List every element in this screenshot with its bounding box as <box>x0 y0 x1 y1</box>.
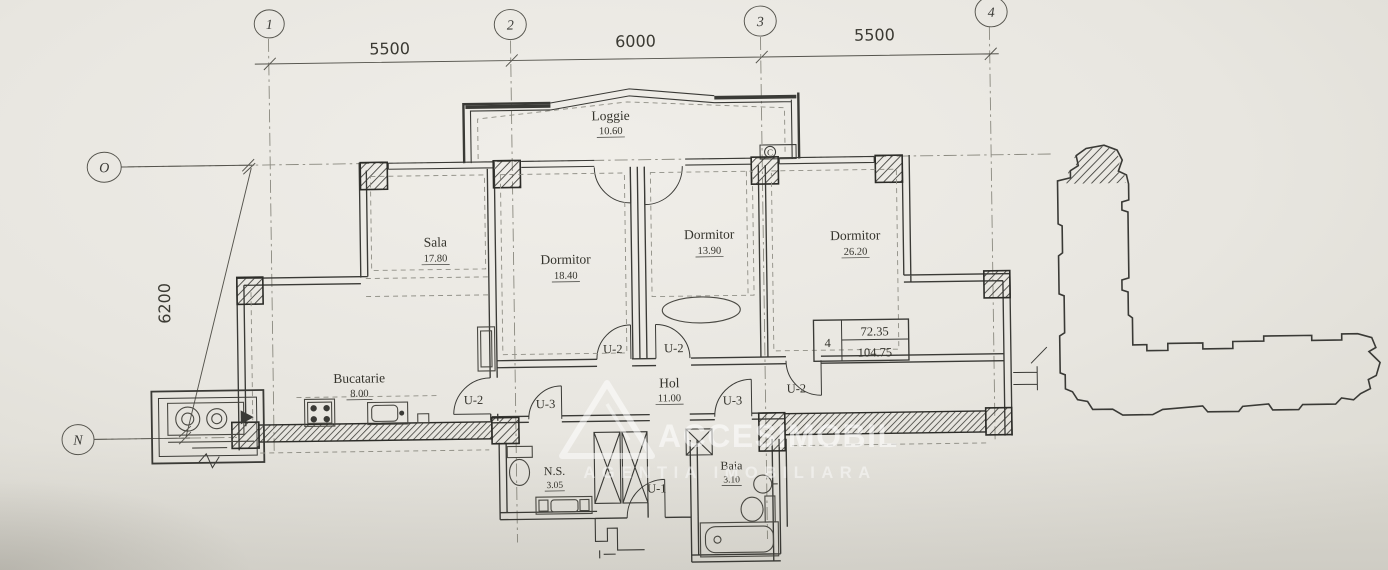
dim-left: 6200 <box>155 283 175 324</box>
room-area-bucatarie: 8.00 <box>350 389 369 400</box>
room-area-dormitor1: 18.40 <box>554 271 578 282</box>
dim-top-1: 5500 <box>369 39 410 59</box>
watermark-tagline-text: AGENTIA IMOBILIARA <box>583 464 876 482</box>
door-label-u3-ns: U-3 <box>536 397 556 411</box>
door-label-u2-bedroom2: U-2 <box>664 341 684 355</box>
room-area-dormitor3: 26.20 <box>844 247 868 258</box>
dim-top-3: 5500 <box>854 25 895 45</box>
axis-label-2: 2 <box>507 18 514 33</box>
door-label-u2-sala: U-2 <box>464 393 484 407</box>
door-label-u1-entrance: U-1 <box>647 481 667 495</box>
summary-apartment-number: 4 <box>825 336 832 350</box>
room-area-ns: 3.05 <box>546 481 563 491</box>
room-label-bucatarie: Bucatarie <box>333 370 385 386</box>
room-label-loggie: Loggie <box>591 108 629 124</box>
door-label-u2-bedroom3: U-2 <box>787 381 807 395</box>
room-label-dormitor1: Dormitor <box>540 251 591 267</box>
axis-label-o: O <box>99 161 109 176</box>
room-area-dormitor2: 13.90 <box>698 246 722 257</box>
door-label-u2-bedroom1: U-2 <box>603 342 623 356</box>
axis-label-4: 4 <box>988 6 995 21</box>
room-label-ns: N.S. <box>544 464 566 478</box>
axis-label-n: N <box>72 434 83 449</box>
door-label-u3-baia: U-3 <box>723 393 743 407</box>
paper-background <box>0 0 1388 570</box>
room-label-hol: Hol <box>659 375 680 390</box>
room-area-loggie: 10.60 <box>599 126 623 137</box>
floor-plan-photo: 5500 6000 5500 6200 1 2 3 4 O N <box>0 0 1388 570</box>
room-label-sala: Sala <box>424 234 447 249</box>
axis-label-3: 3 <box>756 15 764 30</box>
dim-top-2: 6000 <box>615 32 656 52</box>
room-area-hol: 11.00 <box>658 393 681 404</box>
room-label-dormitor3: Dormitor <box>830 227 881 243</box>
c-mark-label: C <box>767 147 773 157</box>
watermark-brand-text: ACCESIMOBIL <box>658 418 899 454</box>
summary-total-area: 104.75 <box>858 345 893 359</box>
summary-living-area: 72.35 <box>860 324 888 338</box>
room-label-dormitor2: Dormitor <box>684 226 735 242</box>
axis-label-1: 1 <box>266 18 273 33</box>
room-area-sala: 17.80 <box>424 253 448 264</box>
